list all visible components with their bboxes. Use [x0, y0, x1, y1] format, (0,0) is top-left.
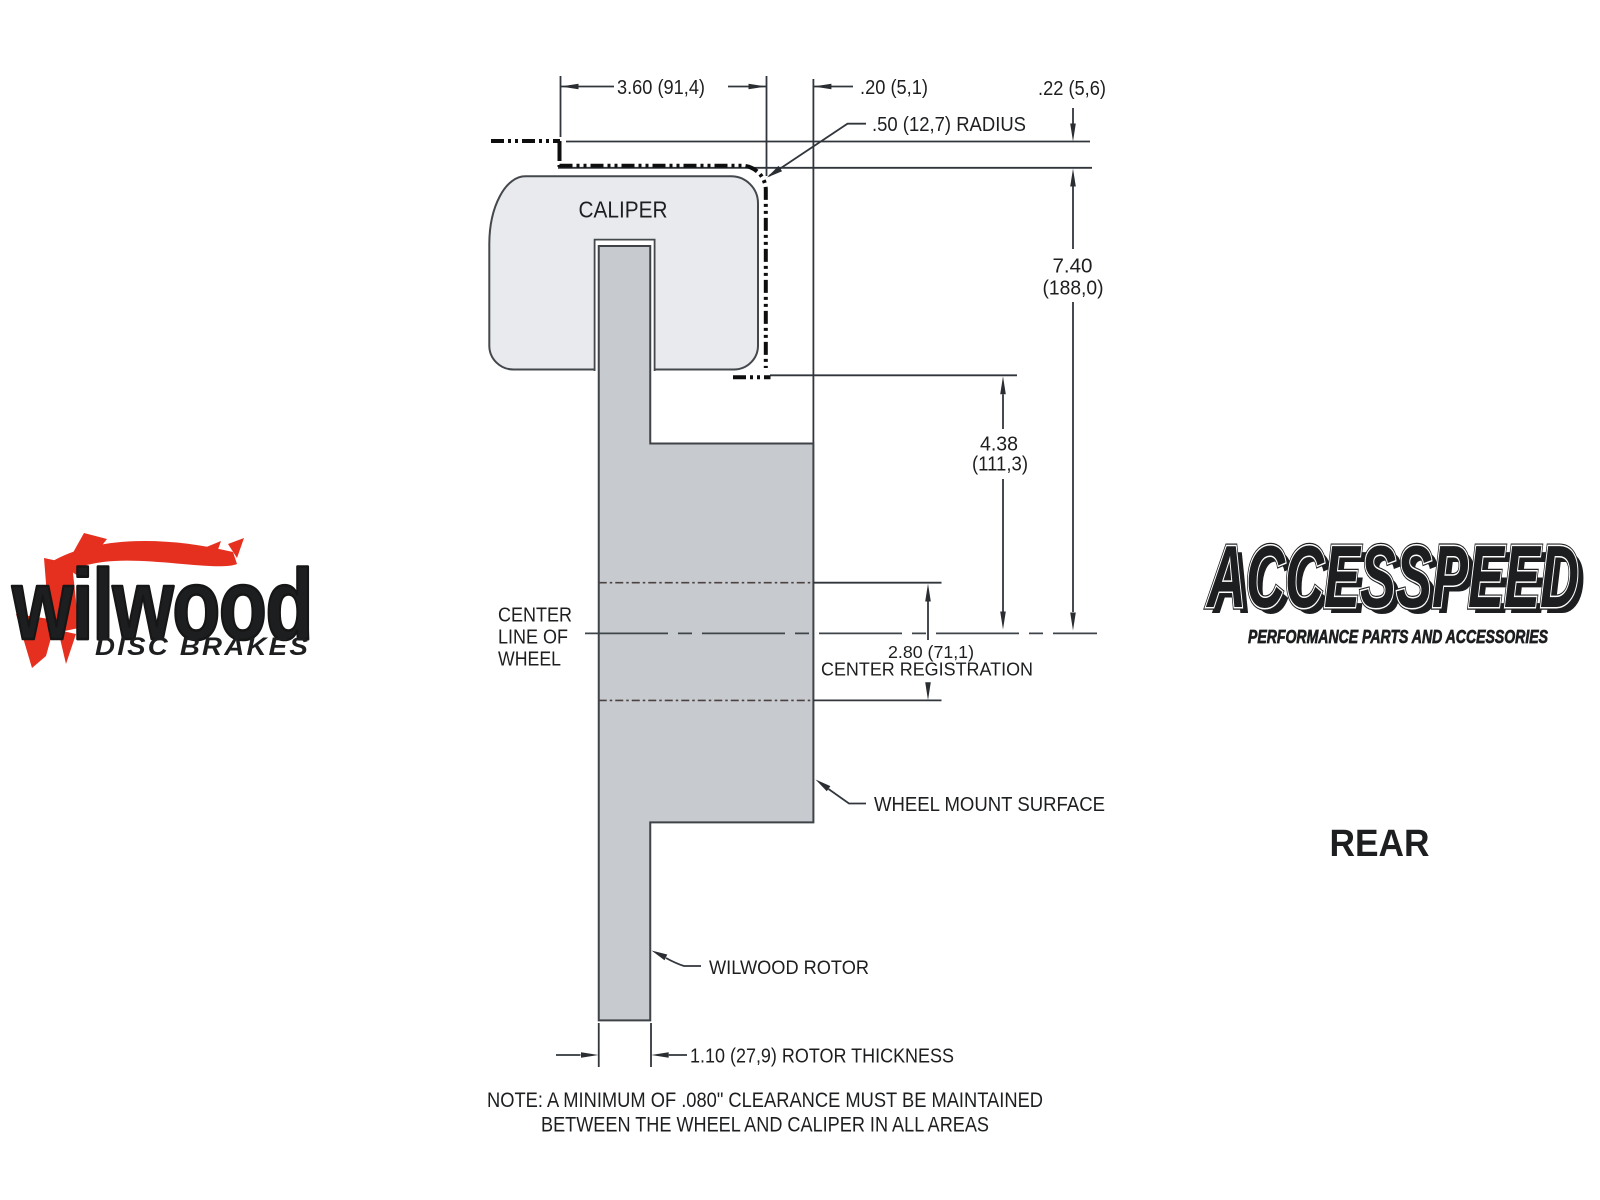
- svg-text:BETWEEN THE WHEEL AND CALIPER: BETWEEN THE WHEEL AND CALIPER IN ALL ARE…: [541, 1114, 989, 1137]
- svg-text:ACCESSPEED: ACCESSPEED: [1206, 527, 1579, 626]
- svg-text:PERFORMANCE PARTS AND ACCESSOR: PERFORMANCE PARTS AND ACCESSORIES: [1248, 627, 1548, 647]
- svg-text:1.10 (27,9) ROTOR THICKNESS: 1.10 (27,9) ROTOR THICKNESS: [690, 1045, 954, 1068]
- svg-text:.22 (5,6): .22 (5,6): [1038, 77, 1106, 100]
- svg-text:WHEEL: WHEEL: [498, 649, 561, 671]
- svg-text:4.38: 4.38: [980, 434, 1018, 456]
- svg-text:DISC BRAKES: DISC BRAKES: [95, 633, 310, 661]
- svg-text:WHEEL MOUNT SURFACE: WHEEL MOUNT SURFACE: [874, 794, 1105, 816]
- svg-text:LINE OF: LINE OF: [498, 627, 568, 649]
- svg-text:WILWOOD ROTOR: WILWOOD ROTOR: [709, 957, 869, 979]
- svg-text:CALIPER: CALIPER: [579, 197, 668, 223]
- svg-text:REAR: REAR: [1330, 823, 1430, 865]
- svg-text:7.40: 7.40: [1053, 256, 1093, 278]
- svg-text:3.60 (91,4): 3.60 (91,4): [617, 76, 705, 99]
- svg-text:.50 (12,7) RADIUS: .50 (12,7) RADIUS: [872, 113, 1026, 136]
- svg-text:(111,3): (111,3): [972, 454, 1028, 476]
- svg-text:.20 (5,1): .20 (5,1): [860, 76, 928, 99]
- svg-text:CENTER REGISTRATION: CENTER REGISTRATION: [821, 660, 1033, 680]
- svg-text:NOTE: A MINIMUM OF .080" CLEAR: NOTE: A MINIMUM OF .080" CLEARANCE MUST …: [487, 1089, 1043, 1112]
- svg-text:(188,0): (188,0): [1043, 278, 1104, 300]
- svg-text:CENTER: CENTER: [498, 605, 572, 627]
